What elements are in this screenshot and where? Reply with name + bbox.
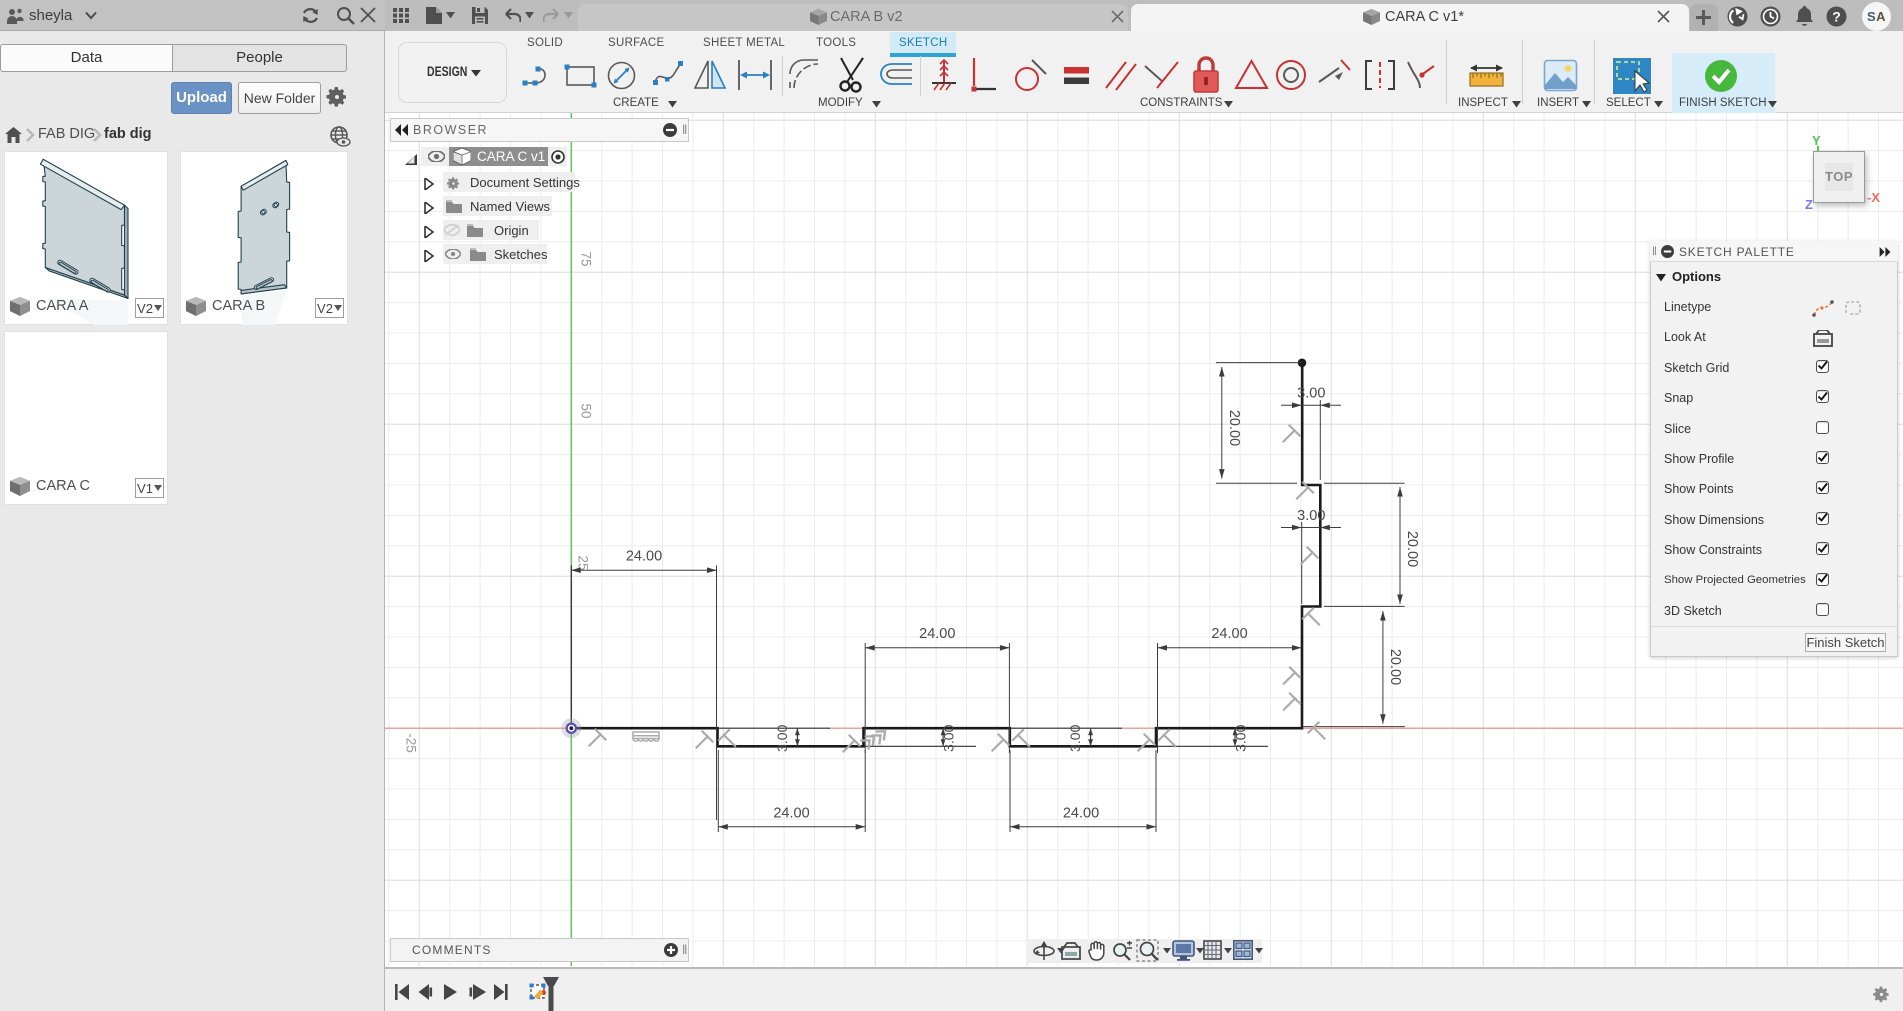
svg-text:24.00: 24.00 bbox=[626, 549, 662, 565]
svg-text:24.00: 24.00 bbox=[1063, 806, 1099, 822]
svg-text:3.00: 3.00 bbox=[1067, 724, 1083, 751]
svg-text:3.00: 3.00 bbox=[1232, 724, 1248, 751]
svg-text:75: 75 bbox=[579, 251, 594, 266]
svg-text:20.00: 20.00 bbox=[1226, 410, 1242, 446]
svg-text:3.00: 3.00 bbox=[774, 724, 790, 751]
svg-text:3.00: 3.00 bbox=[1297, 386, 1325, 402]
svg-text:50: 50 bbox=[579, 403, 594, 418]
svg-text:-25: -25 bbox=[404, 733, 419, 753]
svg-text:20.00: 20.00 bbox=[1387, 649, 1403, 685]
svg-text:24.00: 24.00 bbox=[919, 626, 955, 642]
svg-text:20.00: 20.00 bbox=[1404, 531, 1420, 567]
svg-text:3.00: 3.00 bbox=[1297, 508, 1325, 524]
svg-text:3.00: 3.00 bbox=[941, 724, 957, 751]
svg-text:?: ? bbox=[1832, 9, 1841, 25]
svg-text:24.00: 24.00 bbox=[773, 806, 809, 822]
svg-text:25: 25 bbox=[576, 555, 591, 570]
svg-text:24.00: 24.00 bbox=[1211, 626, 1247, 642]
